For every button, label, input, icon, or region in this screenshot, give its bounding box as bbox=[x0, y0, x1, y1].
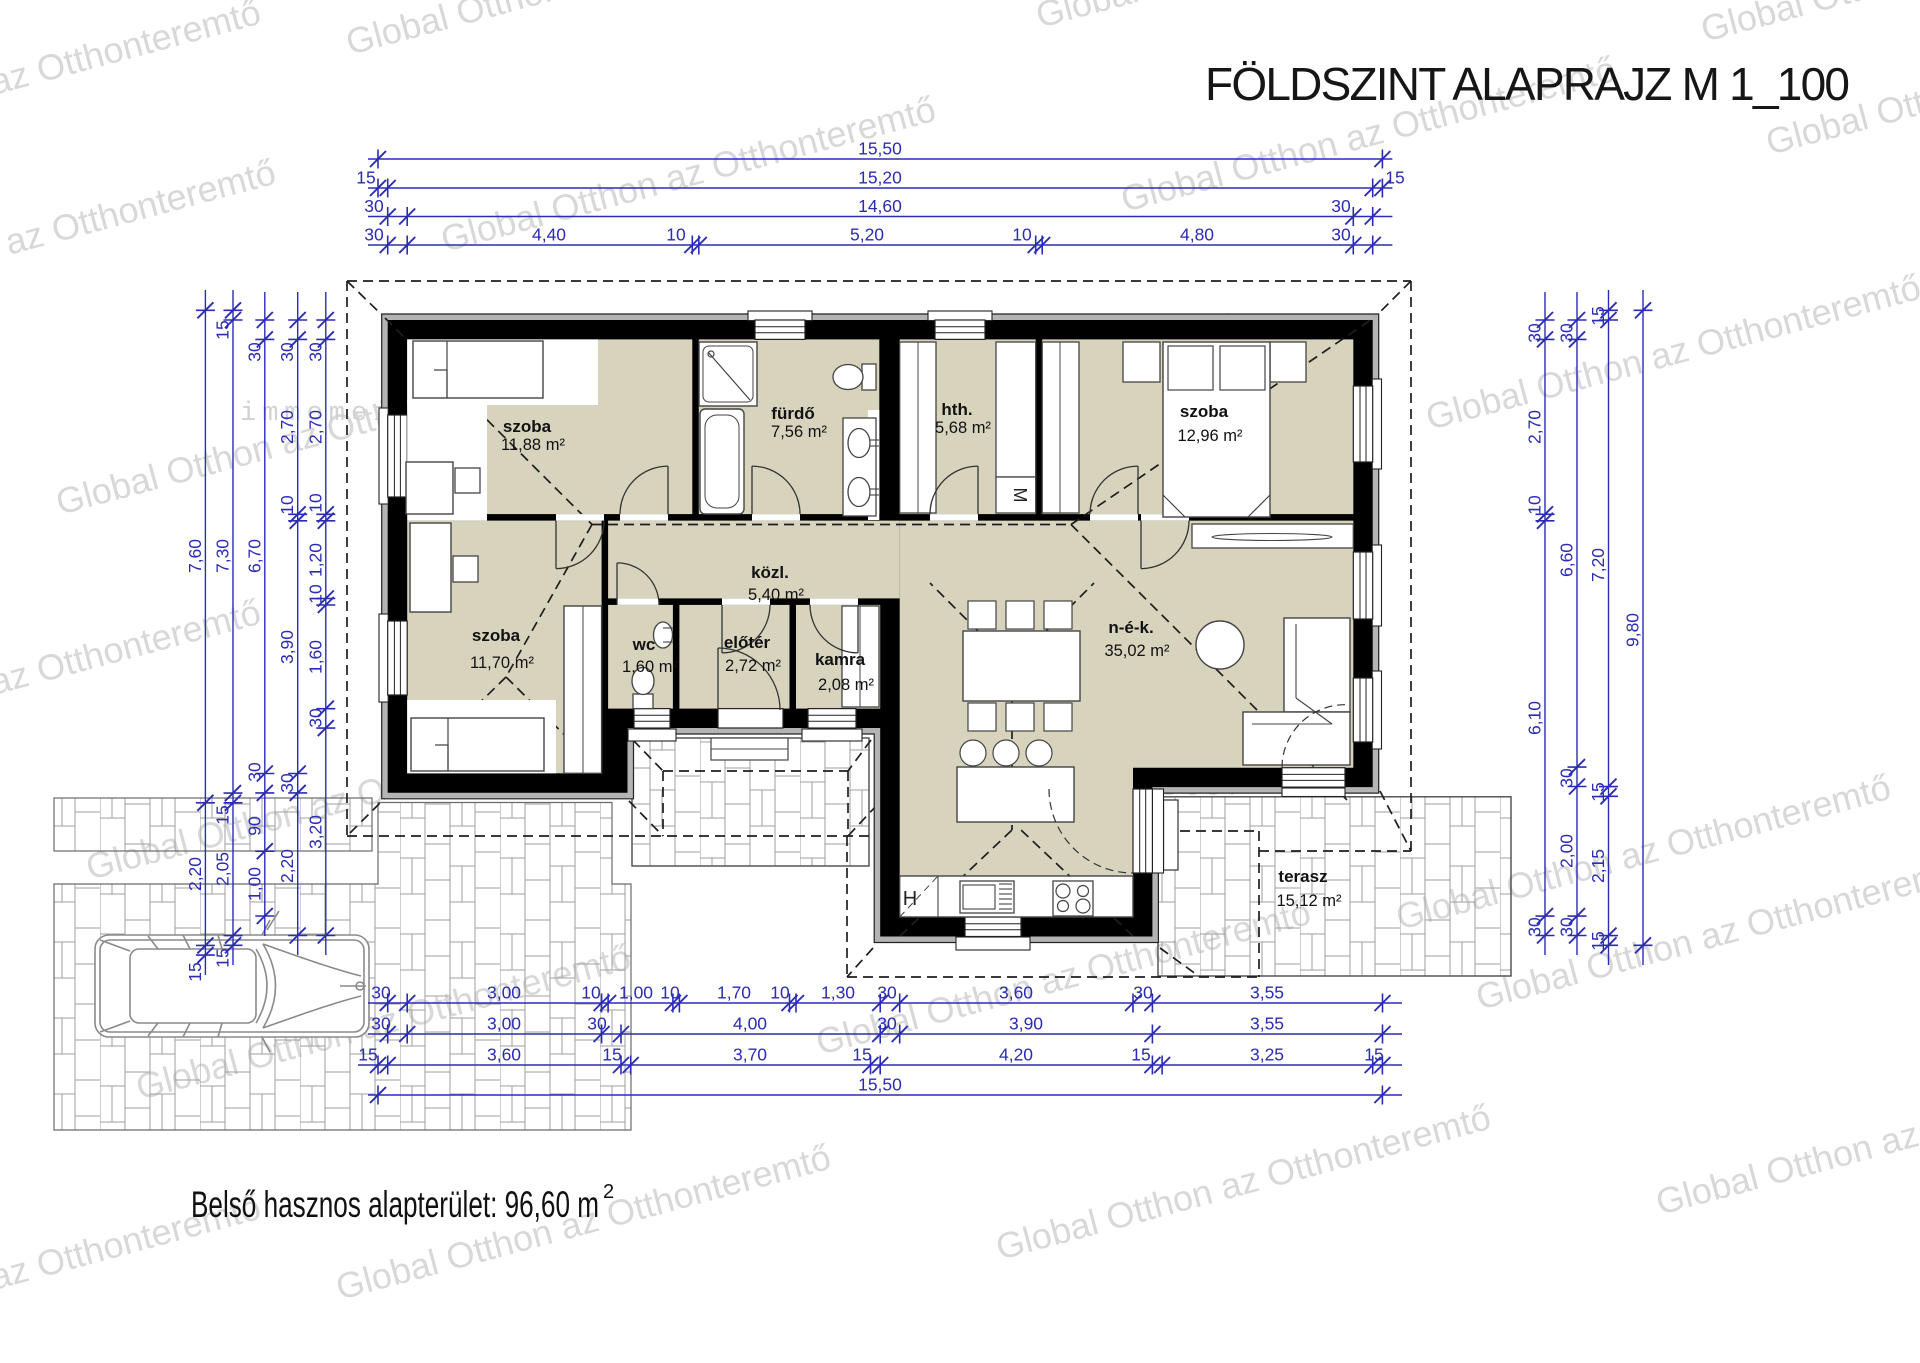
svg-text:9,80: 9,80 bbox=[1623, 613, 1643, 647]
svg-text:1,60: 1,60 bbox=[305, 640, 325, 674]
svg-text:n-é-k.: n-é-k. bbox=[1108, 618, 1153, 637]
svg-text:15: 15 bbox=[358, 1045, 377, 1065]
svg-text:4,00: 4,00 bbox=[733, 1014, 767, 1034]
svg-text:2,00: 2,00 bbox=[1557, 834, 1577, 868]
svg-text:7,30: 7,30 bbox=[213, 539, 233, 573]
svg-text:30: 30 bbox=[371, 1014, 391, 1034]
svg-text:szoba: szoba bbox=[472, 626, 521, 645]
svg-text:5,40 m²: 5,40 m² bbox=[748, 586, 804, 604]
svg-text:1,60 m²: 1,60 m² bbox=[622, 658, 678, 676]
svg-text:1,00: 1,00 bbox=[619, 983, 653, 1003]
svg-text:2: 2 bbox=[603, 1181, 614, 1203]
svg-text:15: 15 bbox=[213, 948, 233, 967]
svg-text:30: 30 bbox=[364, 196, 384, 216]
svg-text:30: 30 bbox=[1133, 983, 1153, 1003]
svg-text:2,70: 2,70 bbox=[277, 410, 297, 444]
svg-text:5,20: 5,20 bbox=[850, 225, 884, 245]
svg-text:wc: wc bbox=[632, 635, 656, 654]
svg-text:15,50: 15,50 bbox=[858, 139, 902, 159]
svg-text:M: M bbox=[1010, 488, 1030, 503]
svg-text:15: 15 bbox=[213, 320, 233, 339]
svg-text:2,15: 2,15 bbox=[1588, 849, 1608, 883]
svg-text:Belső hasznos alapterület: 96,: Belső hasznos alapterület: 96,60 m bbox=[191, 1184, 599, 1225]
svg-text:15,50: 15,50 bbox=[858, 1075, 902, 1095]
svg-text:15: 15 bbox=[356, 168, 375, 188]
svg-text:15: 15 bbox=[213, 805, 233, 824]
svg-text:30: 30 bbox=[1557, 323, 1577, 343]
svg-text:3,55: 3,55 bbox=[1250, 983, 1284, 1003]
svg-text:30: 30 bbox=[877, 983, 897, 1003]
svg-text:30: 30 bbox=[244, 342, 264, 362]
svg-text:2,05: 2,05 bbox=[213, 852, 233, 886]
svg-text:4,40: 4,40 bbox=[532, 225, 566, 245]
svg-text:6,10: 6,10 bbox=[1525, 701, 1545, 735]
svg-text:2,20: 2,20 bbox=[185, 857, 205, 891]
svg-text:hth.: hth. bbox=[941, 400, 972, 419]
svg-text:szoba: szoba bbox=[1180, 402, 1229, 421]
svg-text:15,20: 15,20 bbox=[858, 168, 902, 188]
svg-text:15: 15 bbox=[1588, 782, 1608, 801]
svg-text:15: 15 bbox=[1131, 1045, 1150, 1065]
svg-text:3,90: 3,90 bbox=[277, 630, 297, 664]
svg-text:3,70: 3,70 bbox=[733, 1045, 767, 1065]
svg-text:kamra: kamra bbox=[815, 650, 866, 669]
svg-text:30: 30 bbox=[277, 342, 297, 362]
svg-text:2,08 m²: 2,08 m² bbox=[818, 676, 874, 694]
svg-text:fürdő: fürdő bbox=[771, 404, 814, 423]
svg-text:1,70: 1,70 bbox=[717, 983, 751, 1003]
svg-text:30: 30 bbox=[305, 708, 325, 728]
svg-text:11,88 m²: 11,88 m² bbox=[501, 436, 565, 454]
svg-text:szoba: szoba bbox=[503, 417, 552, 436]
svg-text:30: 30 bbox=[1557, 768, 1577, 788]
svg-text:90: 90 bbox=[244, 816, 264, 836]
svg-text:12,96 m²: 12,96 m² bbox=[1177, 427, 1243, 445]
svg-text:10: 10 bbox=[305, 584, 325, 604]
svg-text:3,00: 3,00 bbox=[487, 1014, 521, 1034]
svg-text:4,20: 4,20 bbox=[999, 1045, 1033, 1065]
svg-text:15: 15 bbox=[1364, 1045, 1383, 1065]
svg-text:15,12 m²: 15,12 m² bbox=[1276, 892, 1342, 910]
svg-text:30: 30 bbox=[1525, 323, 1545, 343]
svg-text:2,70: 2,70 bbox=[1525, 410, 1545, 444]
svg-text:35,02 m²: 35,02 m² bbox=[1104, 642, 1170, 660]
svg-text:3,60: 3,60 bbox=[487, 1045, 521, 1065]
svg-text:15: 15 bbox=[602, 1045, 621, 1065]
svg-text:10: 10 bbox=[581, 983, 601, 1003]
svg-text:3,00: 3,00 bbox=[487, 983, 521, 1003]
svg-text:7,20: 7,20 bbox=[1588, 548, 1608, 582]
svg-text:3,60: 3,60 bbox=[999, 983, 1033, 1003]
svg-text:3,25: 3,25 bbox=[1250, 1045, 1284, 1065]
svg-text:30: 30 bbox=[587, 1014, 607, 1034]
svg-text:30: 30 bbox=[1331, 196, 1351, 216]
svg-text:15: 15 bbox=[185, 962, 205, 981]
svg-text:közl.: közl. bbox=[751, 563, 789, 582]
svg-text:3,20: 3,20 bbox=[305, 815, 325, 849]
svg-text:FÖLDSZINT ALAPRAJZ M 1_100: FÖLDSZINT ALAPRAJZ M 1_100 bbox=[1205, 58, 1850, 110]
svg-text:10: 10 bbox=[305, 493, 325, 513]
svg-text:10: 10 bbox=[1012, 225, 1032, 245]
svg-text:terasz: terasz bbox=[1278, 867, 1327, 886]
svg-text:4,80: 4,80 bbox=[1180, 225, 1214, 245]
svg-text:15: 15 bbox=[1588, 931, 1608, 950]
svg-text:30: 30 bbox=[305, 342, 325, 362]
svg-text:10: 10 bbox=[277, 495, 297, 515]
svg-text:30: 30 bbox=[1331, 225, 1351, 245]
svg-text:30: 30 bbox=[277, 773, 297, 793]
svg-text:3,90: 3,90 bbox=[1009, 1014, 1043, 1034]
svg-text:10: 10 bbox=[660, 983, 680, 1003]
svg-text:1,00: 1,00 bbox=[244, 867, 264, 901]
svg-text:14,60: 14,60 bbox=[858, 196, 902, 216]
svg-text:11,70 m²: 11,70 m² bbox=[470, 654, 534, 672]
svg-text:10: 10 bbox=[770, 983, 790, 1003]
svg-text:30: 30 bbox=[877, 1014, 897, 1034]
svg-text:30: 30 bbox=[1525, 917, 1545, 937]
svg-text:1,20: 1,20 bbox=[305, 543, 325, 577]
svg-text:30: 30 bbox=[371, 983, 391, 1003]
svg-text:10: 10 bbox=[1525, 495, 1545, 515]
svg-text:3,55: 3,55 bbox=[1250, 1014, 1284, 1034]
svg-text:2,20: 2,20 bbox=[277, 849, 297, 883]
svg-text:6,70: 6,70 bbox=[244, 539, 264, 573]
svg-text:10: 10 bbox=[666, 225, 686, 245]
svg-text:30: 30 bbox=[244, 762, 264, 782]
svg-text:7,60: 7,60 bbox=[185, 539, 205, 573]
svg-text:előtér: előtér bbox=[724, 633, 771, 652]
svg-text:5,68 m²: 5,68 m² bbox=[935, 419, 991, 437]
svg-text:7,56 m²: 7,56 m² bbox=[771, 423, 827, 441]
svg-text:2,72 m²: 2,72 m² bbox=[725, 657, 781, 675]
svg-text:2,70: 2,70 bbox=[305, 410, 325, 444]
svg-text:15: 15 bbox=[852, 1045, 871, 1065]
svg-text:30: 30 bbox=[364, 225, 384, 245]
svg-text:15: 15 bbox=[1385, 168, 1404, 188]
svg-text:6,60: 6,60 bbox=[1557, 543, 1577, 577]
svg-text:1,30: 1,30 bbox=[821, 983, 855, 1003]
svg-text:15: 15 bbox=[1588, 306, 1608, 325]
svg-text:30: 30 bbox=[1557, 917, 1577, 937]
